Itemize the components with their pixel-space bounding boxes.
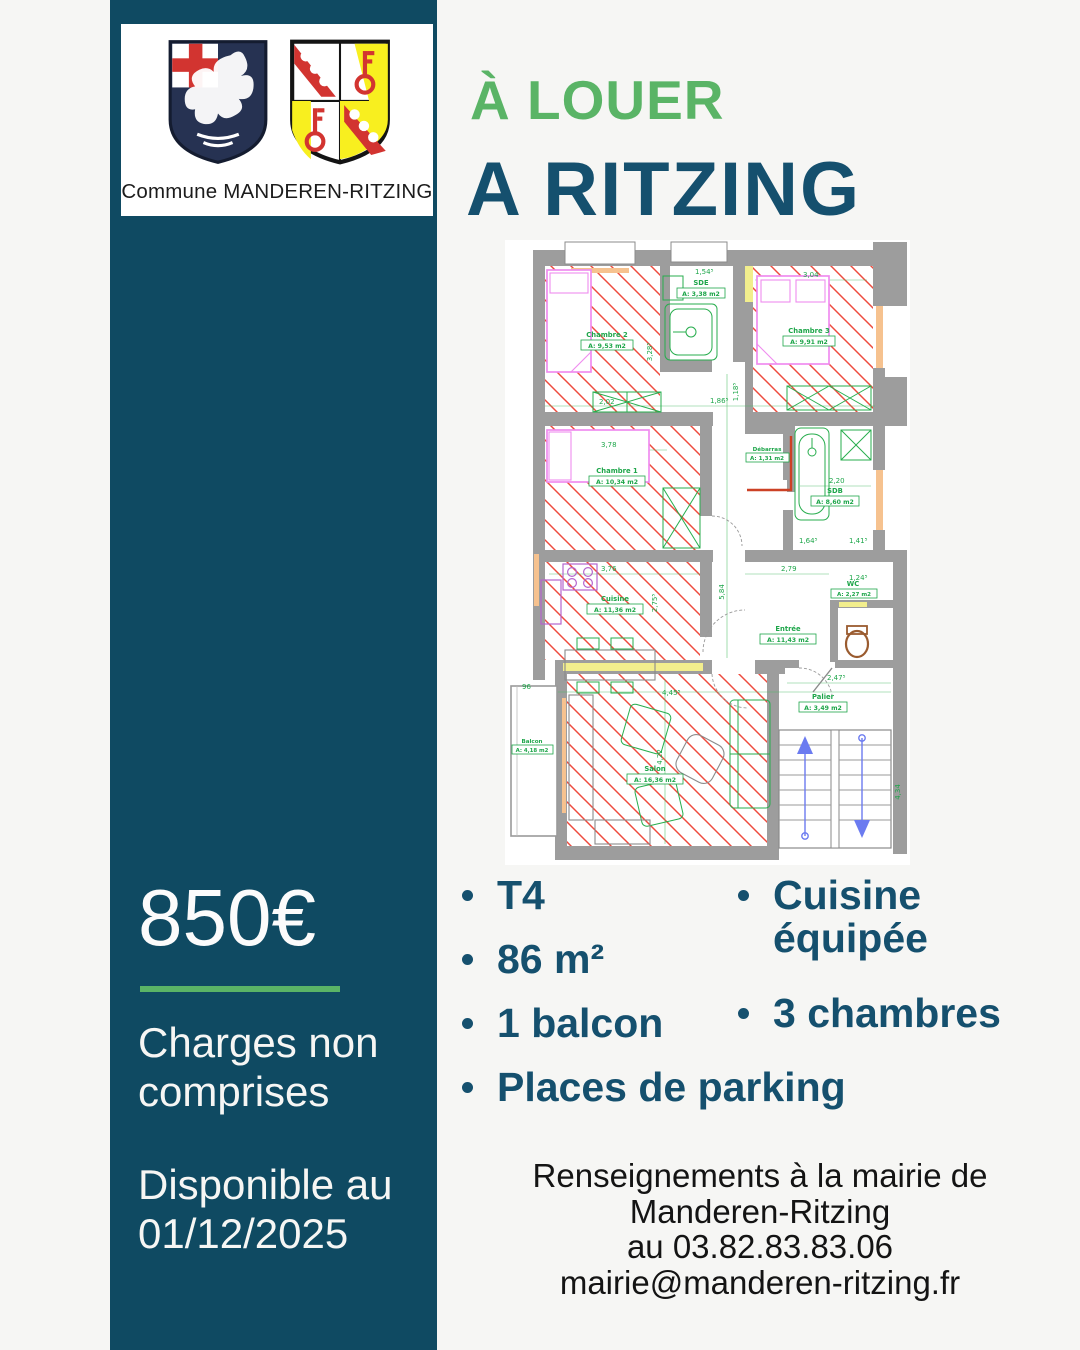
room-label-chambre2: Chambre 2 A: 9,53 m2 — [581, 331, 633, 350]
floorplan-svg: 1,54⁵ 3,04 3,28⁵ 2,02 1,86⁵ 1,18⁵ 3,78 2… — [505, 240, 910, 865]
svg-text:SDE: SDE — [693, 279, 709, 287]
svg-text:4,45⁵: 4,45⁵ — [662, 689, 681, 697]
svg-text:Chambre 2: Chambre 2 — [586, 331, 628, 339]
svg-text:A: 3,38 m2: A: 3,38 m2 — [682, 291, 720, 298]
svg-text:3,78: 3,78 — [601, 441, 617, 449]
svg-text:3,76: 3,76 — [601, 565, 617, 573]
svg-text:4,22: 4,22 — [656, 749, 664, 765]
svg-text:Cuisine: Cuisine — [601, 595, 629, 603]
svg-text:A: 11,43 m2: A: 11,43 m2 — [767, 637, 809, 644]
svg-text:2,02: 2,02 — [599, 398, 615, 406]
svg-text:2,47⁵: 2,47⁵ — [827, 674, 846, 682]
ritzing-shield-icon — [288, 38, 392, 166]
svg-text:Débarras: Débarras — [753, 446, 783, 453]
contact-block: Renseignements à la mairie de Manderen-R… — [440, 1158, 1080, 1301]
feature-parking: Places de parking — [462, 1066, 902, 1109]
svg-text:5,84: 5,84 — [718, 584, 726, 600]
room-label-chambre1: Chambre 1 A: 10,34 m2 — [589, 467, 645, 486]
rental-poster: Commune MANDEREN-RITZING À LOUER A RITZI… — [0, 0, 1080, 1350]
svg-text:A: 3,49 m2: A: 3,49 m2 — [804, 705, 842, 712]
svg-text:4,34: 4,34 — [894, 784, 902, 800]
for-rent-badge: À LOUER — [470, 68, 725, 132]
svg-text:A: 11,36 m2: A: 11,36 m2 — [594, 607, 636, 614]
svg-text:A: 1,31 m2: A: 1,31 m2 — [750, 456, 784, 462]
contact-line: Manderen-Ritzing — [440, 1194, 1080, 1230]
commune-caption: Commune MANDEREN-RITZING — [121, 180, 433, 204]
svg-text:SDB: SDB — [827, 487, 843, 495]
contact-email: mairie@manderen-ritzing.fr — [440, 1265, 1080, 1301]
bullet-icon — [738, 890, 749, 901]
bullet-icon — [462, 1018, 473, 1029]
bullet-icon — [462, 890, 473, 901]
contact-line: Renseignements à la mairie de — [440, 1158, 1080, 1194]
svg-text:A: 10,34 m2: A: 10,34 m2 — [596, 479, 638, 486]
svg-text:1,41⁵: 1,41⁵ — [849, 537, 868, 545]
balcony — [511, 686, 557, 836]
svg-text:Palier: Palier — [812, 693, 835, 701]
svg-text:3,04: 3,04 — [803, 271, 819, 279]
feature-kitchen: Cuisine équipée — [738, 874, 1038, 960]
features-right-list: Cuisine équipée 3 chambres — [738, 874, 1038, 1067]
svg-text:A: 8,60 m2: A: 8,60 m2 — [816, 499, 854, 506]
svg-text:3,28⁵: 3,28⁵ — [646, 343, 654, 362]
floorplan-image: 1,54⁵ 3,04 3,28⁵ 2,02 1,86⁵ 1,18⁵ 3,78 2… — [505, 240, 910, 865]
bed-chambre3 — [757, 276, 829, 364]
page-title: A RITZING — [466, 146, 861, 233]
manderen-shield-icon — [166, 38, 270, 166]
svg-text:1,86⁵: 1,86⁵ — [710, 397, 729, 405]
bullet-icon — [462, 954, 473, 965]
svg-text:96: 96 — [522, 683, 531, 691]
commune-logo-box: Commune MANDEREN-RITZING — [121, 24, 433, 216]
coat-of-arms-pair — [159, 38, 399, 168]
svg-text:Entrée: Entrée — [775, 625, 801, 633]
svg-text:Chambre 1: Chambre 1 — [596, 467, 638, 475]
svg-text:A: 9,91 m2: A: 9,91 m2 — [790, 339, 828, 346]
svg-text:2,75⁵: 2,75⁵ — [651, 594, 659, 613]
feature-bedrooms: 3 chambres — [738, 992, 1038, 1035]
staircase — [779, 730, 891, 848]
svg-text:1,64⁵: 1,64⁵ — [799, 537, 818, 545]
svg-text:Balcon: Balcon — [521, 739, 542, 745]
svg-text:WC: WC — [847, 580, 860, 588]
bullet-icon — [462, 1082, 473, 1093]
charges-note: Charges non comprises — [138, 1018, 428, 1116]
svg-text:A: 9,53 m2: A: 9,53 m2 — [588, 343, 626, 350]
svg-text:A: 16,36 m2: A: 16,36 m2 — [634, 777, 676, 784]
svg-text:2,20: 2,20 — [829, 477, 845, 485]
price: 850€ — [138, 872, 316, 964]
contact-phone: au 03.82.83.83.06 — [440, 1229, 1080, 1265]
svg-text:Chambre 3: Chambre 3 — [788, 327, 830, 335]
availability-date: Disponible au 01/12/2025 — [138, 1160, 458, 1258]
svg-text:A: 2,27 m2: A: 2,27 m2 — [837, 592, 871, 598]
bed-chambre2 — [547, 270, 591, 372]
svg-text:1,54⁵: 1,54⁵ — [695, 268, 714, 276]
svg-text:2,79: 2,79 — [781, 565, 797, 573]
bullet-icon — [738, 1008, 749, 1019]
svg-text:1,18⁵: 1,18⁵ — [732, 383, 740, 402]
svg-text:Salon: Salon — [644, 765, 665, 773]
svg-text:A: 4,18 m2: A: 4,18 m2 — [516, 748, 549, 754]
room-label-chambre3: Chambre 3 A: 9,91 m2 — [783, 327, 835, 346]
green-divider — [140, 986, 340, 992]
